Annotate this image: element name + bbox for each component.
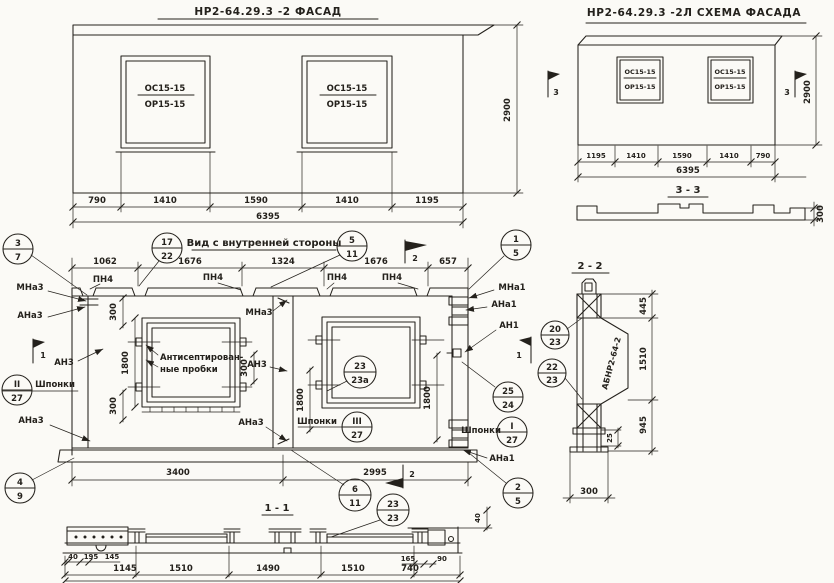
- facade-window2-top-label: ОС15-15: [327, 84, 368, 94]
- scheme-view: НР2-64.29.3 -2Л СХЕМА ФАСАДА 3 3 ОС15-15…: [548, 7, 822, 182]
- shponki-label-3: Шпонки: [461, 426, 501, 436]
- callout-4-9: 4 9: [5, 458, 74, 503]
- callout-23-23a-bottom: 23а: [351, 376, 369, 386]
- callout-I-27-top: I: [510, 422, 513, 432]
- scheme-section-mark-left: 3: [548, 71, 560, 97]
- section-2-2-dim-300: 300: [580, 487, 598, 497]
- section-1-1-dim-1510a: 1510: [169, 564, 193, 574]
- section-3-3-depth: 300: [816, 205, 826, 223]
- facade-dim-ticks: [70, 22, 521, 226]
- plugs-label-line2: ные пробки: [160, 364, 218, 375]
- facade-dim-lines: [73, 25, 523, 228]
- inner-dim-300a: 300: [109, 303, 119, 321]
- section-2-2-dim-1510: 1510: [639, 347, 649, 371]
- scheme-mark-right-label: 3: [784, 88, 790, 97]
- callout-17-22-bottom: 22: [161, 252, 173, 262]
- plugs-label-line1: Антисептирован-: [160, 353, 244, 363]
- inner-title: Вид с внутренней стороны: [187, 238, 342, 249]
- callout-4-9-bottom: 9: [17, 492, 23, 502]
- facade-dim-1410a: 1410: [153, 196, 177, 206]
- callout-II-27-top: II: [14, 380, 20, 390]
- facade-dim-1590: 1590: [244, 196, 268, 206]
- an3-label-1: АН3: [54, 358, 74, 368]
- scheme-dim-lines: [578, 36, 822, 182]
- section-1-1-dim-40v: 40: [474, 513, 482, 523]
- scheme-dim-790: 790: [756, 152, 771, 160]
- section-3-3: 3 - 3 300: [577, 185, 826, 226]
- scheme-dim-1590: 1590: [672, 152, 692, 160]
- left-labels: МНа3 АНа3 АН3 АНа3: [16, 283, 103, 441]
- section-1-1-rebar-dots: [75, 536, 123, 539]
- shponki-label-1: Шпонки: [35, 380, 75, 390]
- facade-dim-1195: 1195: [415, 196, 439, 206]
- callout-6-11-bottom: 11: [349, 499, 361, 509]
- callout-I-27-bottom: 27: [506, 436, 518, 446]
- facade-view: НР2-64.29.3 -2 ФАСАД ОС15-15 ОР15-15 ОС1…: [70, 6, 524, 228]
- callout-25-24: 25 24: [462, 362, 523, 412]
- callout-22-23-top: 22: [546, 363, 558, 373]
- callout-1-5-top: 1: [513, 235, 519, 245]
- callout-III-27-bottom: 27: [351, 431, 363, 441]
- callout-17-22-top: 17: [161, 238, 173, 248]
- facade-title: НР2-64.29.3 -2 ФАСАД: [194, 6, 341, 18]
- callout-23-23a: 23 23а: [327, 356, 376, 391]
- callout-1-5-bottom: 5: [513, 249, 519, 259]
- mark-2-bottom-label: 2: [409, 470, 415, 479]
- ana1-label-1: АНа1: [491, 300, 516, 310]
- inner-dim-300b: 300: [109, 397, 119, 415]
- inner-view: Вид с внутренней стороны: [2, 230, 533, 537]
- pn4-label-4: ПН4: [382, 273, 402, 283]
- scheme-linework: [578, 23, 806, 145]
- an3-label-2: АН3: [247, 360, 267, 370]
- section-3-3-linework: [577, 197, 805, 220]
- mna3-label-1: МНа3: [16, 283, 43, 293]
- callout-2-5-top: 2: [515, 483, 521, 493]
- callout-III-27-top: III: [352, 417, 362, 427]
- ana3-label-2: АНа3: [18, 416, 43, 426]
- section-1-1-linework: [63, 515, 462, 553]
- inner-dim-3400: 3400: [166, 468, 190, 478]
- ana3-label-3: АНа3: [238, 418, 263, 428]
- section-1-1-ribs: [129, 529, 428, 543]
- scheme-window1-top-label: ОС15-15: [624, 68, 656, 76]
- drawing-sheet: НР2-64.29.3 -2 ФАСАД ОС15-15 ОР15-15 ОС1…: [0, 0, 834, 583]
- section-1-1-dim-40: 40: [68, 553, 78, 561]
- section-2-2-dim-25: 25: [606, 433, 614, 443]
- scheme-window1-bottom-label: ОР15-15: [624, 83, 656, 91]
- section-1-1-dim-90: 90: [437, 555, 447, 563]
- shponki-label-2: Шпонки: [297, 417, 337, 427]
- callout-6-11: 6 11: [291, 450, 371, 511]
- section-1-1-dim-145: 145: [105, 553, 120, 561]
- callout-II-27-bottom: 27: [11, 394, 23, 404]
- scheme-dim-height: 2900: [803, 80, 813, 104]
- facade-window2-bottom-label: ОР15-15: [327, 100, 368, 110]
- callout-23-23-top: 23: [387, 500, 399, 510]
- callout-1-5: 1 5: [469, 230, 531, 289]
- an1-label: АН1: [499, 321, 519, 331]
- inner-dim-1062: 1062: [93, 257, 117, 267]
- mark-2-top-label: 2: [412, 254, 418, 263]
- section-mark-2-top: 2: [405, 240, 427, 263]
- callout-20-23: 20 23: [541, 318, 582, 349]
- scheme-mark-left-label: 3: [553, 88, 559, 97]
- section-2-2-linework: [570, 273, 628, 452]
- section-mark-2-bottom: 2: [385, 465, 415, 488]
- pn4-label-2: ПН4: [203, 273, 223, 283]
- scheme-dim-1410b: 1410: [719, 152, 739, 160]
- facade-dim-height: 2900: [503, 98, 513, 122]
- section-3-3-title: 3 - 3: [675, 185, 700, 196]
- mna1-label: МНа1: [498, 283, 525, 293]
- scheme-dim-1410a: 1410: [626, 152, 646, 160]
- section-1-1-dim-1490: 1490: [256, 564, 280, 574]
- section-1-1-dim-165: 165: [401, 555, 416, 563]
- section-2-2-title: 2 - 2: [577, 261, 602, 272]
- facade-dim-790: 790: [88, 196, 106, 206]
- callout-5-11-bottom: 11: [346, 250, 358, 260]
- scheme-window2-bottom-label: ОР15-15: [714, 83, 746, 91]
- callout-25-24-bottom: 24: [502, 401, 514, 411]
- callout-22-23: 22 23: [538, 359, 582, 399]
- inner-dim-657: 657: [439, 257, 457, 267]
- callout-3-7-bottom: 7: [15, 253, 21, 263]
- callout-I-27: I 27: [497, 417, 527, 447]
- section-mark-1-right: 1: [516, 337, 531, 363]
- scheme-dim-total: 6395: [676, 166, 700, 176]
- callout-III-27: III 27: [342, 412, 372, 442]
- section-2-2-part-label: АБНР2-64-2: [600, 336, 623, 390]
- callout-3-7-top: 3: [15, 239, 21, 249]
- pn4-label-3: ПН4: [327, 273, 347, 283]
- callout-20-23-top: 20: [549, 325, 561, 335]
- facade-linework: [73, 19, 494, 193]
- callout-6-11-top: 6: [352, 485, 358, 495]
- inner-dim-2995: 2995: [363, 468, 387, 478]
- callout-4-9-top: 4: [17, 478, 23, 488]
- inner-detail-lines: [128, 340, 444, 412]
- callout-20-23-bottom: 23: [549, 338, 561, 348]
- facade-dim-1410b: 1410: [335, 196, 359, 206]
- inner-dim-1800a: 1800: [121, 351, 131, 375]
- section-mark-1-left: 1: [33, 339, 46, 363]
- inner-dim-1800b: 1800: [296, 388, 306, 412]
- callout-II-27: II 27: [2, 375, 32, 405]
- section-1-1-dim-1510b: 1510: [341, 564, 365, 574]
- callout-5-11-top: 5: [349, 236, 355, 246]
- inner-dim-1800c: 1800: [423, 386, 433, 410]
- scheme-title: НР2-64.29.3 -2Л СХЕМА ФАСАДА: [587, 7, 801, 19]
- callout-25-24-top: 25: [502, 387, 514, 397]
- scheme-dim-1195: 1195: [586, 152, 606, 160]
- section-2-2: 2 - 2 445 1510 945 25 300 АБНР2-64-2 20 …: [538, 261, 658, 503]
- callout-22-23-bottom: 23: [546, 376, 558, 386]
- blueprint-canvas: НР2-64.29.3 -2 ФАСАД ОС15-15 ОР15-15 ОС1…: [0, 0, 834, 583]
- facade-window1-bottom-label: ОР15-15: [145, 100, 186, 110]
- section-1-1-dim-740: 740: [401, 564, 419, 574]
- callout-2-5-bottom: 5: [515, 497, 521, 507]
- section-1-1-dim-1145: 1145: [113, 564, 137, 574]
- callout-23-23a-top: 23: [354, 362, 366, 372]
- inner-dim-1324: 1324: [271, 257, 295, 267]
- mark-1-right-label: 1: [516, 351, 522, 360]
- section-2-2-dim-945: 945: [639, 416, 649, 434]
- section-1-1-dim-195: 195: [84, 553, 99, 561]
- ana1-label-2: АНа1: [489, 454, 514, 464]
- scheme-window2-top-label: ОС15-15: [714, 68, 746, 76]
- section-2-2-dim-445: 445: [639, 297, 649, 315]
- callout-17-22: 17 22: [139, 233, 182, 286]
- mna3-label-2: МНа3: [245, 308, 272, 318]
- facade-window1-top-label: ОС15-15: [145, 84, 186, 94]
- inner-dim-1676a: 1676: [178, 257, 202, 267]
- pn4-label-1: ПН4: [93, 275, 113, 285]
- scheme-dim-ticks: [575, 33, 820, 181]
- mark-1-left-label: 1: [40, 351, 46, 360]
- section-1-1: 1 - 1 40 195 145: [62, 503, 493, 583]
- callout-23-23-bottom: 23: [387, 514, 399, 524]
- inner-dim-lines: [72, 258, 468, 486]
- inner-dim-1676b: 1676: [364, 257, 388, 267]
- pn4-labels: ПН4 ПН4 ПН4 ПН4: [90, 273, 418, 290]
- section-1-1-title: 1 - 1: [264, 503, 289, 514]
- ana3-label-1: АНа3: [17, 311, 42, 321]
- facade-dim-total: 6395: [256, 212, 280, 222]
